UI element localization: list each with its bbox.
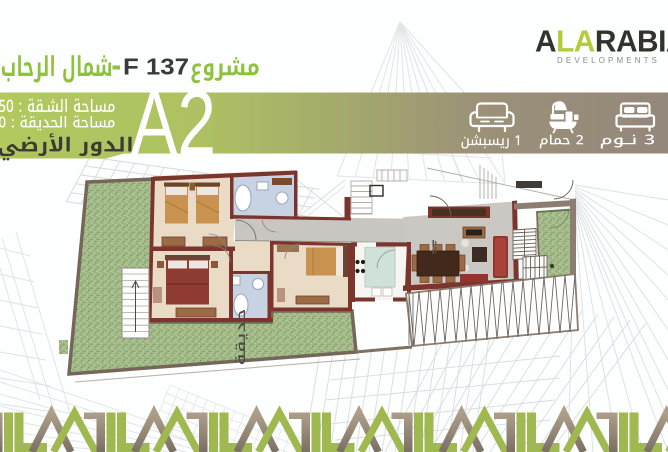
- svg-text:F 137: F 137: [123, 54, 189, 80]
- svg-text:DEVELOPMENTS: DEVELOPMENTS: [557, 56, 660, 65]
- svg-text:A2: A2: [131, 73, 216, 174]
- svg-text:ALARABIA: ALARABIA: [535, 25, 668, 59]
